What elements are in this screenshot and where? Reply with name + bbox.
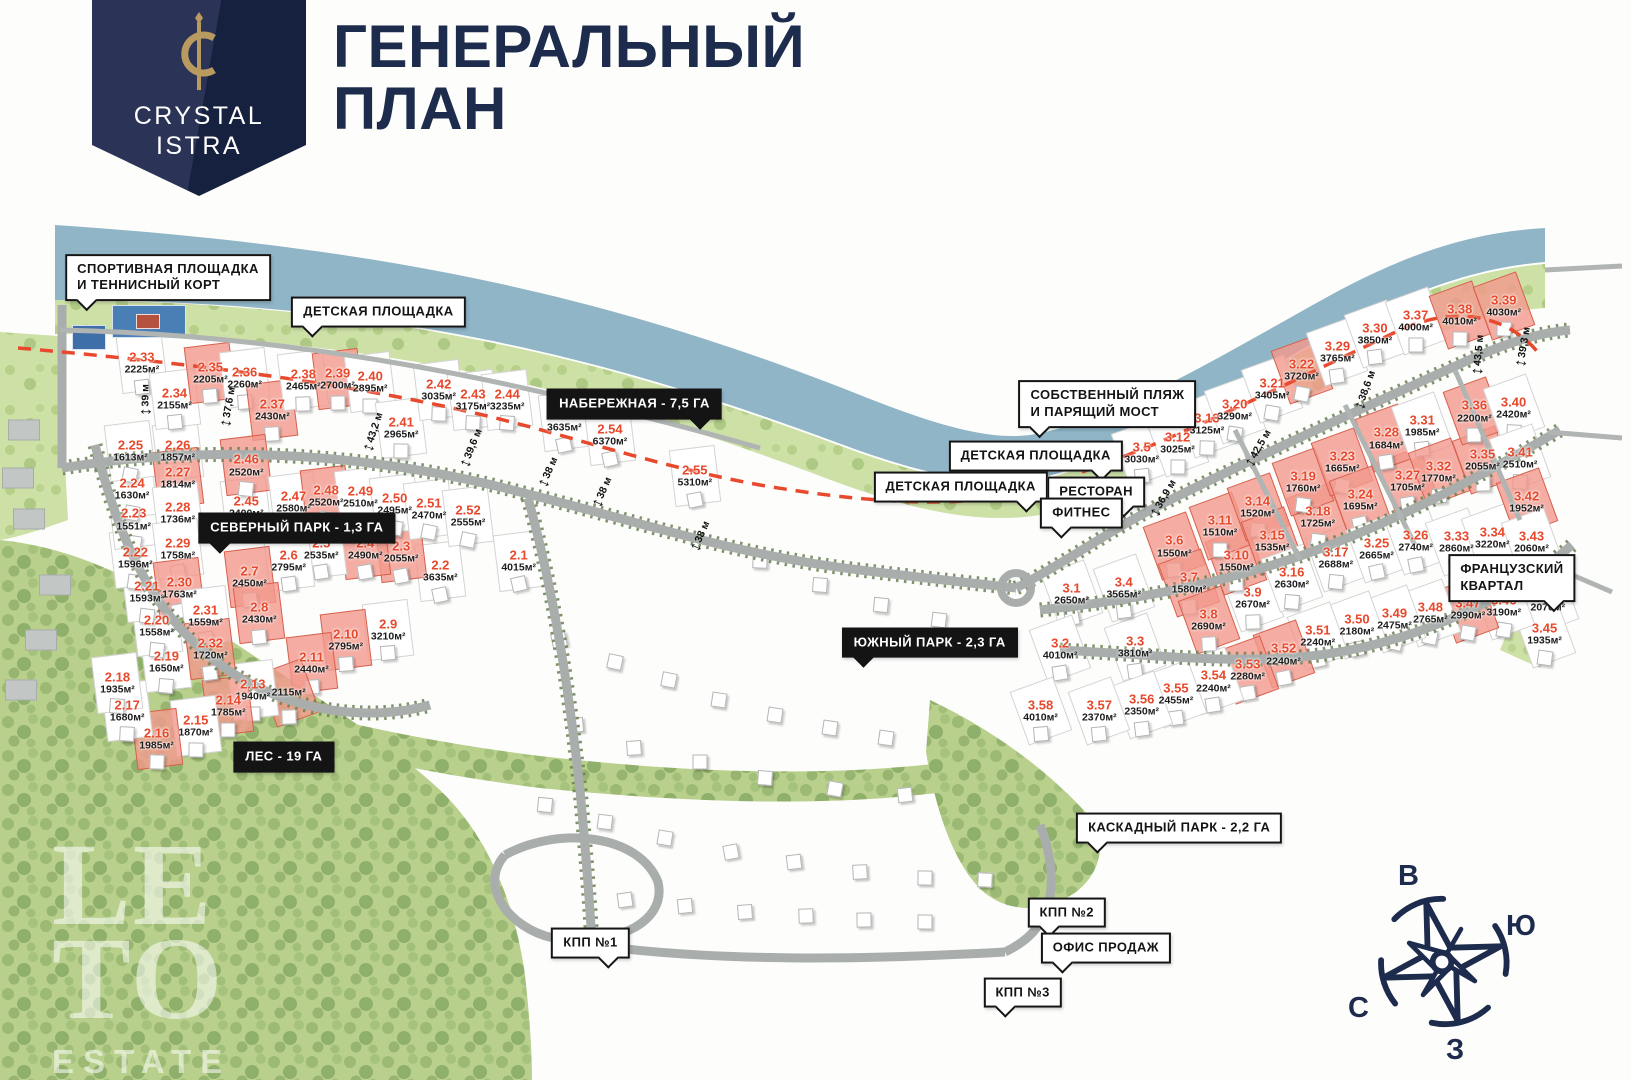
map-callout: ФРАНЦУЗСКИЙ КВАРТАЛ	[1448, 554, 1575, 602]
map-callout: СЕВЕРНЫЙ ПАРК - 1,3 ГА	[198, 513, 395, 544]
compass-south-label: Ю	[1506, 910, 1536, 943]
map-callout: ДЕТСКАЯ ПЛОЩАДКА	[874, 472, 1048, 503]
map-callout: КПП №3	[983, 977, 1061, 1008]
logo-text-line2: ISTRA	[156, 132, 242, 160]
map-callout: КПП №1	[551, 927, 629, 958]
compass-north-label: С	[1348, 992, 1369, 1025]
map-callout: НАБЕРЕЖНАЯ - 7,5 ГА	[547, 388, 722, 419]
logo-text-line1: CRYSTAL	[134, 102, 265, 130]
map-callout: ДЕТСКАЯ ПЛОЩАДКА	[291, 297, 465, 328]
map-callout: КАСКАДНЫЙ ПАРК - 2,2 ГА	[1076, 813, 1282, 844]
map-callout: ДЕТСКАЯ ПЛОЩАДКА	[949, 440, 1123, 471]
map-callout: ОФИС ПРОДАЖ	[1041, 933, 1171, 964]
map-callout: ЛЕС - 19 ГА	[233, 742, 334, 773]
map-callout: КПП №2	[1027, 897, 1105, 928]
masterplan-page: 2.14015м²2.23635м²2.32055м²2.42490м²2.52…	[0, 0, 1631, 1080]
page-title: ГЕНЕРАЛЬНЫЙ ПЛАН	[333, 16, 805, 141]
map-callout: СОБСТВЕННЫЙ ПЛЯЖ И ПАРЯЩИЙ МОСТ	[1019, 380, 1197, 428]
map-callout: ЮЖНЫЙ ПАРК - 2,3 ГА	[842, 627, 1018, 658]
logo-monogram-icon	[170, 10, 228, 94]
map-callout: ФИТНЕС	[1040, 498, 1122, 529]
map-callout: СПОРТИВНАЯ ПЛОЩАДКА И ТЕННИСНЫЙ КОРТ	[65, 254, 271, 302]
compass-west-label: З	[1446, 1034, 1464, 1067]
compass-east-label: В	[1398, 860, 1419, 893]
